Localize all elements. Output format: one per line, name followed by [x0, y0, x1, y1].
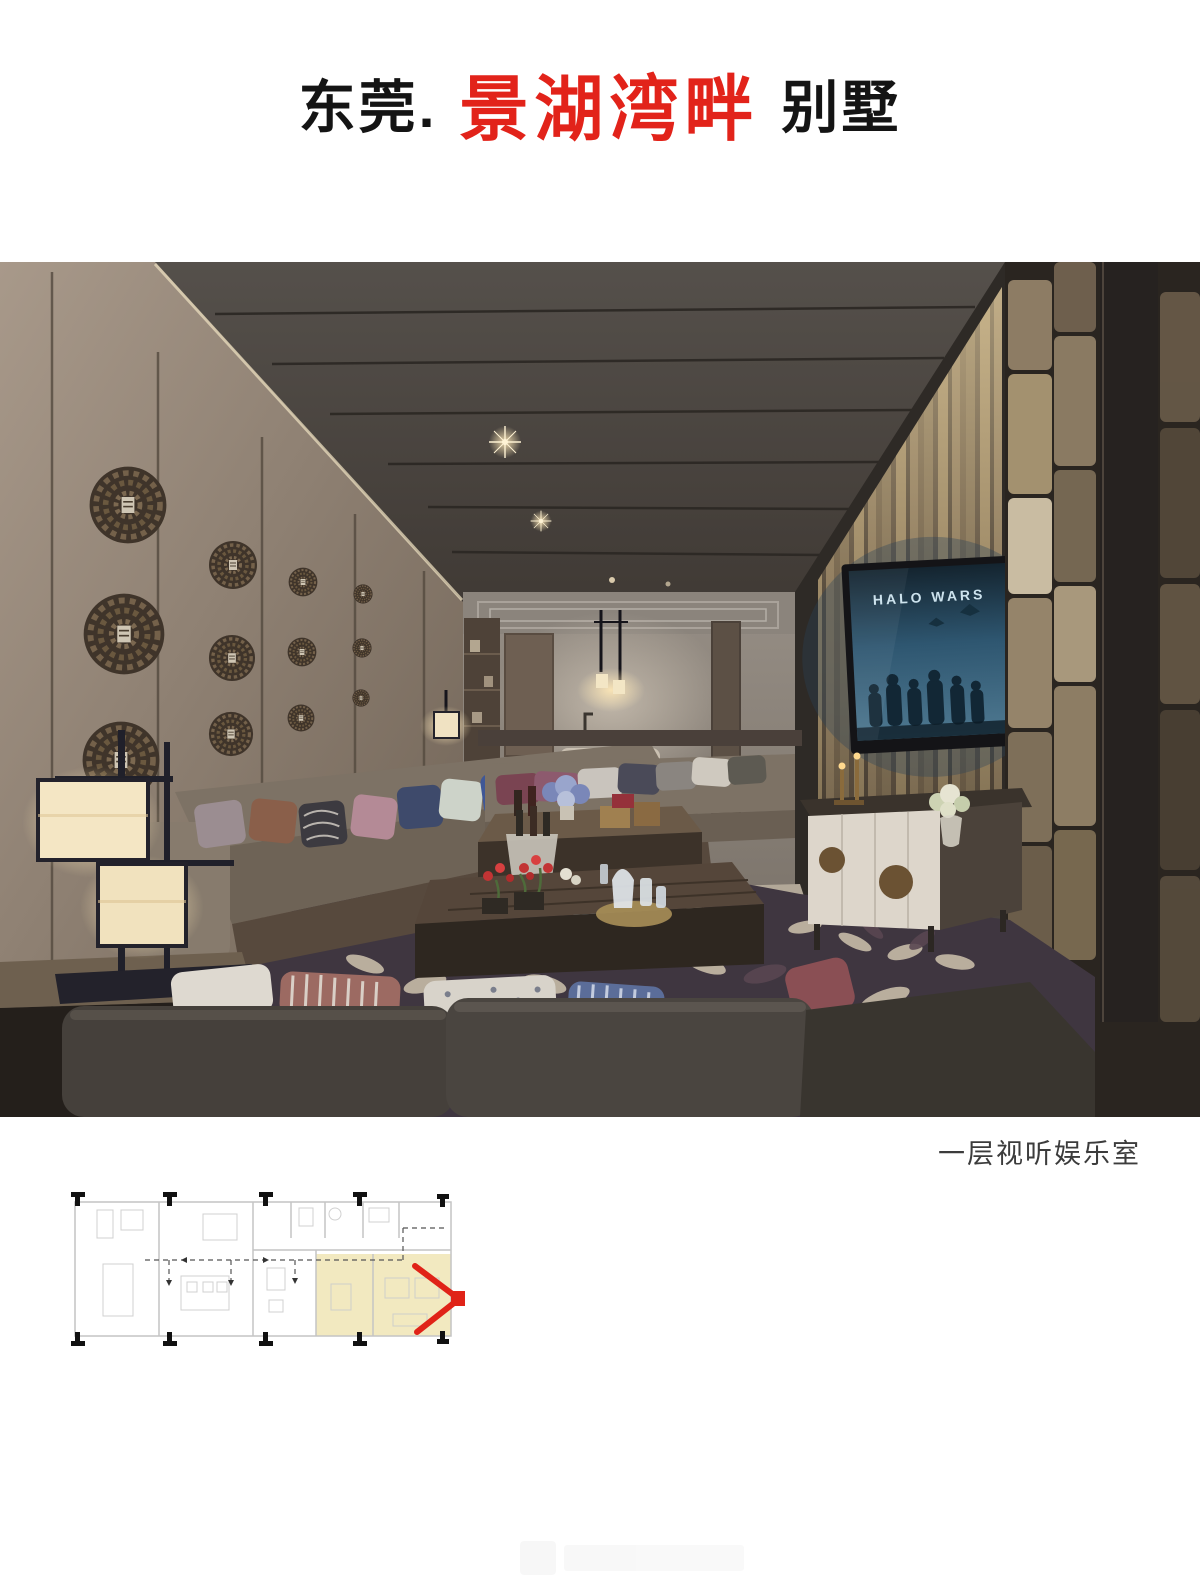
cabinet-handle	[819, 847, 845, 873]
ceiling-downlight-icon	[531, 511, 552, 532]
page-title: 东莞. 景湖湾畔 别墅	[0, 48, 1200, 158]
watermark-logo	[520, 1541, 556, 1575]
lamp-shade-lower	[98, 864, 186, 946]
gift-box	[612, 794, 634, 808]
watermark-text-block	[564, 1545, 744, 1571]
console-table	[478, 730, 802, 746]
title-building-type: 别墅	[781, 62, 901, 144]
interior-render-photo: HALO WARS	[0, 262, 1200, 1117]
gift-box	[600, 806, 630, 828]
watermark	[520, 1538, 760, 1578]
floor-plan	[63, 1188, 465, 1350]
cabinet-handle	[879, 865, 913, 899]
gift-box	[634, 802, 660, 826]
ceiling-downlight-icon	[489, 426, 521, 458]
dark-column	[1100, 262, 1158, 1022]
padded-blocks-far	[1160, 292, 1200, 1022]
title-project-name: 景湖湾畔	[459, 51, 759, 155]
title-city: 东莞.	[299, 62, 438, 144]
photo-caption: 一层视听娱乐室	[938, 1132, 1178, 1171]
lamp-shade-upper	[38, 780, 148, 860]
